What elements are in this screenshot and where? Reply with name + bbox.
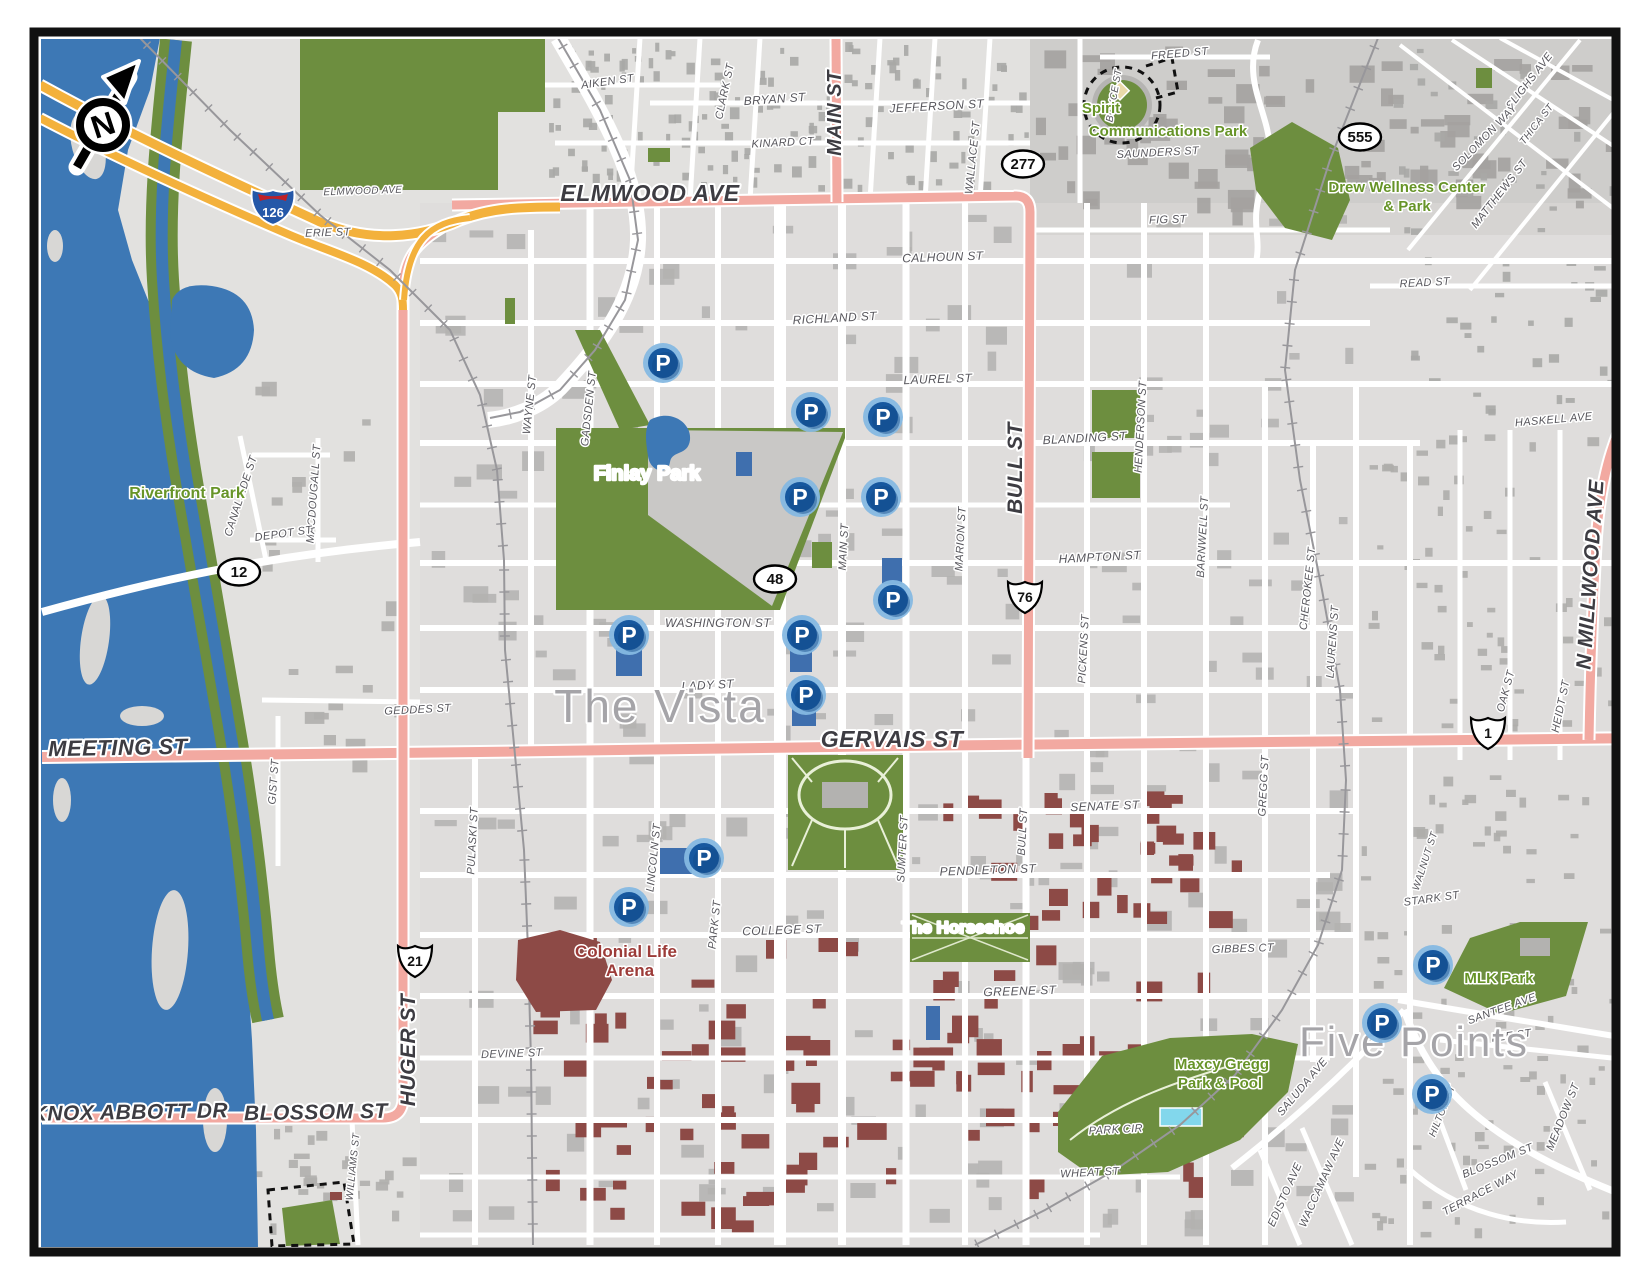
svg-text:12: 12 xyxy=(231,564,248,581)
map-label-gibbes-ct: GIBBES CT xyxy=(1212,942,1276,956)
map-label-senate-st: SENATE ST xyxy=(1070,798,1141,814)
map-label-riverfront-park: Riverfront Park xyxy=(129,485,245,502)
svg-text:P: P xyxy=(792,484,807,510)
map-label-fig-st: FIG ST xyxy=(1149,213,1188,226)
parking-marker[interactable]: P xyxy=(873,580,913,620)
svg-text:P: P xyxy=(885,587,900,613)
map-label-bull-st: BULL ST xyxy=(1004,420,1027,513)
map-label-laurel-st: LAUREL ST xyxy=(903,371,973,387)
svg-text:P: P xyxy=(875,404,890,430)
map-label-the-horseshoe: The Horseshoe xyxy=(902,918,1025,937)
map-label-colonial-life: Colonial Life xyxy=(575,942,677,961)
parking-marker[interactable]: P xyxy=(861,477,901,517)
parking-marker[interactable]: P xyxy=(791,392,831,432)
map-label-maxcy-gregg: Maxcy Gregg xyxy=(1175,1056,1269,1073)
map-label-calhoun-st: CALHOUN ST xyxy=(902,249,985,266)
map-label-washington-st: WASHINGTON ST xyxy=(665,616,772,630)
map-label-devine-st: DEVINE ST xyxy=(481,1047,544,1061)
parking-marker[interactable]: P xyxy=(609,887,649,927)
map-label--park: & Park xyxy=(1383,198,1431,215)
map-label-meeting-st: MEETING ST xyxy=(48,734,189,761)
parking-marker[interactable]: P xyxy=(643,343,683,383)
svg-text:P: P xyxy=(798,682,813,708)
parking-marker[interactable]: P xyxy=(863,397,903,437)
map-label-knox-abbott-dr: KNOX ABBOTT DR xyxy=(32,1099,229,1125)
map-label-main-st: MAIN ST xyxy=(824,69,846,156)
parking-marker[interactable]: P xyxy=(1413,945,1453,985)
map-label-gervais-st: GERVAIS ST xyxy=(821,726,965,752)
map-label-arena: Arena xyxy=(606,961,655,980)
map-label-finlay-park: Finlay Park xyxy=(594,463,702,485)
route-shield-555: 555 xyxy=(1339,124,1381,151)
svg-text:P: P xyxy=(621,622,636,648)
map-label-bull-st: BULL ST xyxy=(1016,807,1031,856)
parking-marker[interactable]: P xyxy=(684,838,724,878)
city-parking-map[interactable]: 126277555124876121AIKEN STCLARK STBRYAN … xyxy=(0,0,1650,1275)
svg-text:21: 21 xyxy=(407,953,423,969)
svg-text:48: 48 xyxy=(767,571,784,588)
parking-marker[interactable]: P xyxy=(786,675,826,715)
svg-text:P: P xyxy=(1424,1081,1439,1107)
map-label-five-points: Five Points xyxy=(1299,1018,1529,1065)
svg-text:P: P xyxy=(655,350,670,376)
svg-text:76: 76 xyxy=(1017,589,1033,605)
svg-text:126: 126 xyxy=(262,205,284,220)
svg-text:P: P xyxy=(1425,952,1440,978)
route-shield-12: 12 xyxy=(218,559,260,586)
svg-text:P: P xyxy=(1374,1010,1389,1036)
parking-marker[interactable]: P xyxy=(1362,1003,1402,1043)
map-label-spirit: Spirit xyxy=(1082,100,1120,117)
route-shield-277: 277 xyxy=(1002,151,1044,178)
map-stage: 126277555124876121AIKEN STCLARK STBRYAN … xyxy=(0,0,1650,1275)
svg-text:277: 277 xyxy=(1010,156,1035,173)
map-label-huger-st: HUGER ST xyxy=(397,992,420,1106)
map-label-park-pool: Park & Pool xyxy=(1178,1075,1262,1092)
route-shield-48: 48 xyxy=(754,566,796,593)
map-label-drew-wellness-center: Drew Wellness Center xyxy=(1328,179,1485,196)
map-label-college-st: COLLEGE ST xyxy=(742,922,823,939)
map-label-main-st: MAIN ST xyxy=(837,522,852,571)
svg-text:P: P xyxy=(803,399,818,425)
map-label-blossom-st: BLOSSOM ST xyxy=(244,1100,390,1126)
svg-text:P: P xyxy=(696,845,711,871)
parking-marker[interactable]: P xyxy=(1412,1074,1452,1114)
svg-text:1: 1 xyxy=(1484,725,1492,741)
parking-marker[interactable]: P xyxy=(780,477,820,517)
map-canvas: 126277555124876121AIKEN STCLARK STBRYAN … xyxy=(0,0,1650,1275)
svg-text:P: P xyxy=(873,484,888,510)
svg-text:P: P xyxy=(621,894,636,920)
map-label-communications-park: Communications Park xyxy=(1089,123,1248,140)
map-label-the-vista: The Vista xyxy=(554,680,765,732)
map-label-mlk-park: MLK Park xyxy=(1464,970,1534,987)
map-label-erie-st: ERIE ST xyxy=(305,226,352,240)
map-label-greene-st: GREENE ST xyxy=(983,983,1058,1000)
map-label-elmwood-ave: ELMWOOD AVE xyxy=(560,180,739,206)
parking-marker[interactable]: P xyxy=(782,615,822,655)
svg-text:P: P xyxy=(794,622,809,648)
svg-text:555: 555 xyxy=(1347,129,1372,146)
parking-marker[interactable]: P xyxy=(609,615,649,655)
